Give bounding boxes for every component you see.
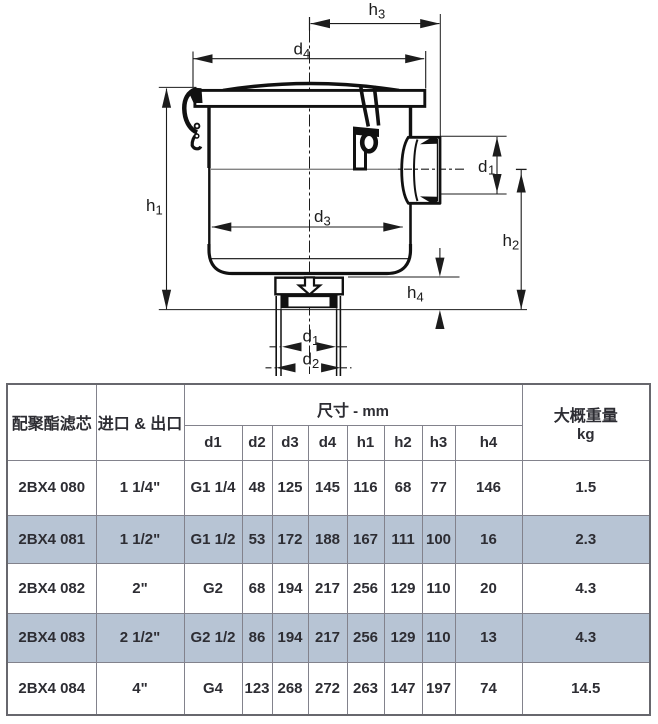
svg-text:2: 2 — [512, 238, 519, 253]
svg-text:d: d — [314, 207, 323, 226]
svg-text:4: 4 — [417, 290, 424, 305]
svg-text:h: h — [146, 196, 155, 215]
svg-text:d: d — [303, 327, 312, 346]
svg-text:d: d — [478, 157, 487, 176]
svg-text:h: h — [407, 283, 416, 302]
svg-text:d: d — [303, 350, 312, 369]
svg-text:1: 1 — [488, 163, 495, 178]
svg-text:d: d — [294, 40, 303, 59]
svg-text:3: 3 — [378, 7, 385, 22]
svg-text:h: h — [503, 231, 512, 250]
svg-text:1: 1 — [156, 203, 163, 218]
svg-text:h: h — [369, 0, 378, 19]
svg-text:3: 3 — [324, 214, 331, 229]
svg-text:2: 2 — [312, 356, 319, 371]
svg-text:4: 4 — [303, 46, 310, 61]
svg-text:1: 1 — [312, 333, 319, 348]
